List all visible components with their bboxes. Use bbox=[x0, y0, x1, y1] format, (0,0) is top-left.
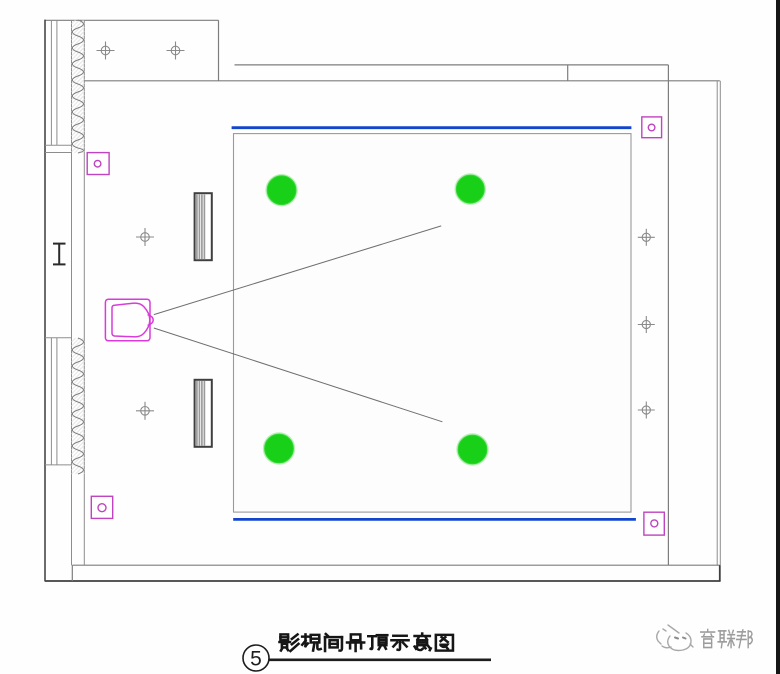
svg-text:5: 5 bbox=[250, 648, 262, 671]
